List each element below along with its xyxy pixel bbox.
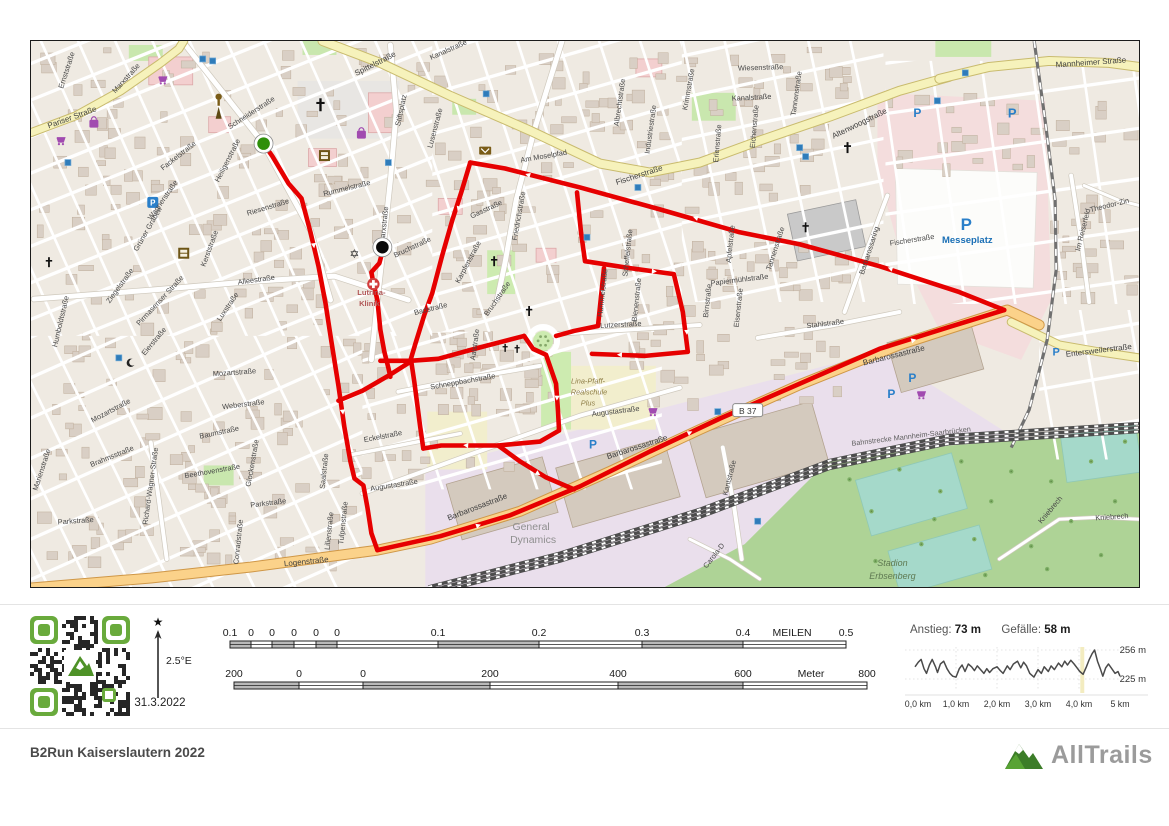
- building: [780, 268, 788, 278]
- building: [1098, 101, 1106, 110]
- building: [207, 553, 220, 564]
- building: [438, 404, 448, 414]
- building: [747, 262, 754, 272]
- parking-icon: P: [961, 215, 972, 234]
- building: [105, 148, 115, 159]
- qr-module: [114, 712, 118, 716]
- building: [667, 297, 678, 306]
- tree-icon: [984, 574, 986, 576]
- qr-module: [94, 692, 98, 696]
- shopping-cart-icon: [57, 138, 65, 142]
- qr-module: [94, 624, 98, 628]
- building: [245, 308, 253, 318]
- church-cross-icon: [503, 346, 508, 347]
- church-cross-icon: [491, 259, 497, 261]
- qr-module: [46, 664, 50, 668]
- building: [915, 95, 930, 105]
- qr-module: [98, 688, 102, 692]
- church-cross-icon: [526, 309, 532, 311]
- tree-icon: [921, 543, 923, 545]
- qr-module: [94, 620, 98, 624]
- street-label: Realschule: [571, 388, 607, 397]
- building: [436, 364, 448, 374]
- qr-module: [118, 664, 122, 668]
- street-label: Klinik: [359, 299, 380, 308]
- qr-module: [34, 668, 38, 672]
- qr-module: [98, 696, 102, 700]
- qr-module: [78, 616, 82, 620]
- building: [541, 163, 552, 173]
- info-icon: [803, 154, 809, 160]
- distance-label: 1,0 km: [943, 699, 969, 709]
- tree-icon: [1124, 441, 1126, 443]
- building: [774, 144, 780, 154]
- info-icon: [65, 160, 71, 166]
- qr-module: [90, 712, 94, 716]
- building: [59, 474, 66, 480]
- qr-module: [106, 660, 110, 664]
- tree-icon: [849, 479, 851, 481]
- elevation-header: Anstieg: 73 m Gefälle: 58 m: [910, 624, 1070, 636]
- qr-module: [110, 684, 114, 688]
- distance-label: 5 km: [1110, 699, 1129, 709]
- distance-label: 3,0 km: [1025, 699, 1051, 709]
- building: [442, 273, 452, 280]
- tree-icon: [940, 491, 942, 493]
- qr-module: [94, 628, 98, 632]
- max-elevation-label: 256 m: [1120, 645, 1146, 656]
- tree-icon: [1046, 568, 1048, 570]
- qr-module: [30, 652, 34, 656]
- building: [274, 260, 283, 267]
- qr-module: [74, 624, 78, 628]
- building: [760, 184, 772, 191]
- scalebar-label: 0.1: [223, 627, 238, 639]
- qr-module: [74, 616, 78, 620]
- qr-module: [62, 700, 66, 704]
- building: [684, 305, 695, 316]
- qr-module: [94, 688, 98, 692]
- theater-icon: [321, 156, 328, 159]
- info-icon: [934, 98, 940, 104]
- synagogue-icon: ✡: [349, 247, 359, 261]
- qr-module: [94, 632, 98, 636]
- parking-icon: P: [1052, 347, 1059, 359]
- parking-icon: P: [887, 387, 895, 401]
- building: [666, 286, 673, 297]
- qr-module: [54, 680, 58, 684]
- building: [630, 58, 637, 69]
- qr-module: [66, 696, 70, 700]
- qr-module: [34, 664, 38, 668]
- qr-module: [66, 684, 70, 688]
- scalebar-label: 400: [609, 668, 627, 680]
- shopping-cart-icon: [918, 397, 920, 399]
- building: [97, 118, 106, 129]
- building: [229, 516, 236, 521]
- qr-module: [106, 672, 110, 676]
- route-map: PPPPPPPP✡B 37Pariser StraßeMarxstraßeErn…: [30, 40, 1140, 588]
- street-label: Messeplatz: [942, 235, 993, 246]
- info-icon: [635, 184, 641, 190]
- church-cross-icon: [493, 256, 495, 266]
- qr-module: [126, 692, 130, 696]
- building: [783, 67, 790, 73]
- qr-module: [50, 660, 54, 664]
- church-cross-icon: [504, 344, 505, 352]
- parking-icon: P: [908, 371, 916, 385]
- qr-module: [62, 688, 66, 692]
- building: [833, 386, 842, 396]
- qr-module: [78, 640, 82, 644]
- building: [735, 182, 743, 194]
- alltrails-mountain-icon: [1003, 738, 1045, 772]
- building: [637, 333, 648, 340]
- qr-module: [78, 684, 82, 688]
- monument-icon: [217, 100, 219, 106]
- qr-module: [126, 652, 130, 656]
- building: [830, 346, 840, 357]
- church-cross-icon: [528, 306, 530, 316]
- building: [1027, 155, 1035, 167]
- building: [321, 346, 331, 357]
- building: [692, 241, 703, 252]
- tree-icon: [1030, 545, 1032, 547]
- qr-module: [54, 676, 58, 680]
- tree-icon: [973, 538, 975, 540]
- church-cross-icon: [316, 102, 324, 104]
- building: [153, 370, 165, 382]
- building: [656, 74, 666, 79]
- qr-module: [86, 644, 90, 648]
- shopping-bag-icon: [89, 120, 98, 128]
- building: [800, 397, 814, 404]
- qr-module: [70, 684, 74, 688]
- qr-module: [94, 640, 98, 644]
- building: [211, 322, 222, 331]
- theater-icon: [319, 150, 330, 161]
- building: [952, 127, 962, 132]
- street-label: Lutrina-: [357, 288, 386, 297]
- building: [424, 98, 438, 103]
- building: [513, 244, 527, 251]
- alltrails-logo-text: AllTrails: [1051, 741, 1153, 770]
- monument-icon: [215, 94, 221, 100]
- building: [553, 78, 566, 89]
- qr-module: [98, 664, 102, 668]
- parking-icon: P: [1008, 105, 1017, 120]
- qr-module: [126, 712, 130, 716]
- north-star-icon: ★: [153, 615, 164, 629]
- scalebar-unit: Meter: [798, 668, 825, 680]
- building: [590, 211, 603, 218]
- church-cross-icon: [516, 345, 517, 353]
- church-cross-icon: [805, 222, 807, 232]
- qr-module: [70, 620, 74, 624]
- building: [1070, 148, 1080, 155]
- building: [632, 90, 644, 103]
- qr-module: [82, 624, 86, 628]
- building: [189, 445, 195, 452]
- building: [799, 290, 812, 301]
- scalebar-label: 0: [269, 627, 275, 639]
- building: [465, 364, 474, 373]
- street-label: Plus: [581, 399, 596, 408]
- building: [133, 266, 141, 272]
- roundabout-tree: [539, 344, 542, 347]
- qr-module: [74, 692, 78, 696]
- qr-module: [122, 712, 126, 716]
- building: [287, 305, 298, 313]
- map-date: 31.3.2022: [120, 697, 200, 709]
- roundabout-tree: [544, 344, 547, 347]
- building: [88, 557, 101, 568]
- qr-module: [106, 648, 110, 652]
- street-label: Lina-Pfaff-: [571, 377, 606, 386]
- building: [651, 340, 661, 346]
- tree-icon: [934, 518, 936, 520]
- building: [800, 84, 812, 91]
- building: [650, 179, 661, 186]
- qr-module: [78, 708, 82, 712]
- street-label: Stadion: [877, 558, 907, 568]
- distance-label: 2,0 km: [984, 699, 1010, 709]
- info-icon: [797, 145, 803, 151]
- building: [135, 466, 144, 477]
- scalebar-label: 0.2: [532, 627, 547, 639]
- building: [642, 254, 650, 262]
- divider-top: [0, 604, 1169, 605]
- roundabout-tree: [544, 335, 547, 338]
- building: [1013, 164, 1023, 170]
- building: [448, 151, 461, 160]
- qr-module: [70, 712, 74, 716]
- building: [998, 123, 1010, 134]
- church-cross-icon: [802, 225, 808, 227]
- church-cross-icon: [48, 257, 50, 267]
- qr-module: [62, 640, 66, 644]
- building: [1127, 285, 1137, 295]
- building: [457, 338, 466, 346]
- qr-module: [118, 712, 122, 716]
- qr-module: [114, 680, 118, 684]
- qr-module: [38, 676, 42, 680]
- scalebar-label: 0.5: [839, 627, 854, 639]
- start-marker: [257, 137, 270, 150]
- elevation-chart: 256 m225 m0,0 km1,0 km2,0 km3,0 km4,0 km…: [905, 643, 1148, 715]
- building: [137, 414, 149, 419]
- qr-module: [98, 656, 102, 660]
- tree-icon: [990, 501, 992, 503]
- qr-module: [66, 632, 70, 636]
- building: [96, 161, 105, 166]
- building: [66, 423, 74, 429]
- qr-module: [98, 652, 102, 656]
- qr-module: [106, 652, 110, 656]
- building: [658, 53, 668, 64]
- building: [472, 404, 481, 416]
- elevation-line: [915, 650, 1120, 677]
- divider-bottom: [0, 728, 1169, 729]
- scalebar-label: 0: [248, 627, 254, 639]
- building: [426, 180, 440, 186]
- qr-alignment: [105, 691, 113, 699]
- shopping-cart-icon: [62, 143, 64, 145]
- church-cross-icon: [515, 347, 520, 348]
- alltrails-logo: AllTrails: [1003, 738, 1153, 772]
- building: [421, 457, 430, 464]
- qr-module: [46, 676, 50, 680]
- building: [774, 374, 784, 379]
- building: [963, 135, 978, 143]
- building: [37, 512, 51, 524]
- building: [709, 100, 717, 111]
- qr-module: [82, 708, 86, 712]
- tree-icon: [1070, 520, 1072, 522]
- qr-module: [38, 668, 42, 672]
- qr-module: [54, 652, 58, 656]
- qr-module: [102, 684, 106, 688]
- theater-icon: [178, 248, 189, 259]
- tree-icon: [871, 510, 873, 512]
- qr-module: [122, 648, 126, 652]
- building: [784, 352, 798, 357]
- tree-icon: [875, 560, 877, 562]
- qr-module: [102, 648, 106, 652]
- qr-module: [94, 696, 98, 700]
- qr-module: [58, 680, 62, 684]
- qr-module: [90, 632, 94, 636]
- qr-module: [122, 668, 126, 672]
- qr-module: [70, 696, 74, 700]
- building: [712, 301, 720, 308]
- building: [214, 214, 227, 225]
- building: [599, 99, 609, 107]
- roundabout-tree: [547, 340, 550, 343]
- qr-module: [78, 636, 82, 640]
- qr-module: [78, 704, 82, 708]
- theater-icon: [180, 254, 187, 257]
- tree-icon: [1010, 471, 1012, 473]
- building: [697, 354, 705, 360]
- building: [79, 265, 94, 270]
- building: [307, 111, 318, 117]
- building: [47, 552, 58, 560]
- qr-module: [54, 660, 58, 664]
- building: [362, 468, 371, 479]
- building: [1056, 120, 1069, 130]
- building: [397, 215, 410, 223]
- building: [74, 85, 82, 96]
- qr-module: [74, 684, 78, 688]
- qr-module: [98, 704, 102, 708]
- qr-module: [74, 620, 78, 624]
- tree-icon: [1050, 481, 1052, 483]
- building: [397, 404, 405, 413]
- qr-module: [50, 664, 54, 668]
- landuse-area: [935, 41, 991, 57]
- building: [334, 101, 340, 110]
- building: [102, 239, 111, 249]
- map-canvas: PPPPPPPP✡B 37Pariser StraßeMarxstraßeErn…: [31, 41, 1139, 587]
- qr-module: [114, 648, 118, 652]
- tree-icon: [899, 469, 901, 471]
- street-label: Wiesenstraße: [738, 62, 784, 73]
- building: [551, 125, 564, 134]
- qr-module: [42, 676, 46, 680]
- qr-module: [50, 656, 54, 660]
- info-icon: [116, 355, 122, 361]
- north-arrow: ★ 2.5°E: [142, 612, 202, 704]
- qr-module: [106, 656, 110, 660]
- scalebar-label: 0: [313, 627, 319, 639]
- building: [435, 143, 445, 155]
- building: [275, 403, 282, 415]
- theater-icon: [180, 250, 187, 253]
- building: [583, 72, 589, 84]
- building: [148, 407, 162, 419]
- info-icon: [715, 409, 721, 415]
- qr-finder: [38, 696, 50, 708]
- building: [196, 345, 209, 357]
- road-ref-badge: B 37: [739, 406, 757, 416]
- building: [278, 432, 288, 445]
- declination-label: 2.5°E: [166, 655, 192, 667]
- qr-module: [38, 672, 42, 676]
- qr-module: [62, 696, 66, 700]
- qr-module: [46, 648, 50, 652]
- street-label: Erbsenberg: [869, 571, 915, 581]
- building: [718, 334, 730, 341]
- qr-module: [70, 632, 74, 636]
- building: [817, 341, 826, 352]
- street-label: Dynamics: [510, 535, 556, 546]
- qr-module: [94, 636, 98, 640]
- church-cross-icon: [46, 260, 52, 262]
- qr-module: [66, 688, 70, 692]
- qr-module: [54, 668, 58, 672]
- qr-module: [90, 620, 94, 624]
- qr-module: [106, 684, 110, 688]
- midpoint-marker: [376, 241, 389, 254]
- building: [151, 184, 163, 191]
- building: [592, 113, 600, 122]
- shopping-cart-icon: [650, 414, 652, 416]
- building: [146, 434, 160, 440]
- building: [586, 101, 599, 108]
- building: [812, 139, 824, 149]
- building: [709, 365, 723, 375]
- qr-module: [86, 640, 90, 644]
- building: [500, 350, 513, 361]
- tree-icon: [1114, 501, 1116, 503]
- building: [78, 167, 88, 176]
- building: [688, 399, 699, 411]
- building: [840, 83, 847, 91]
- qr-module: [38, 680, 42, 684]
- scalebar-label: 0.3: [635, 627, 650, 639]
- ascent-value: 73 m: [955, 624, 981, 636]
- info-icon: [483, 91, 489, 97]
- qr-module: [82, 712, 86, 716]
- qr-module: [98, 660, 102, 664]
- building: [341, 383, 349, 393]
- qr-module: [62, 624, 66, 628]
- building: [124, 478, 138, 487]
- qr-module: [78, 688, 82, 692]
- building: [402, 451, 411, 461]
- qr-module: [114, 676, 118, 680]
